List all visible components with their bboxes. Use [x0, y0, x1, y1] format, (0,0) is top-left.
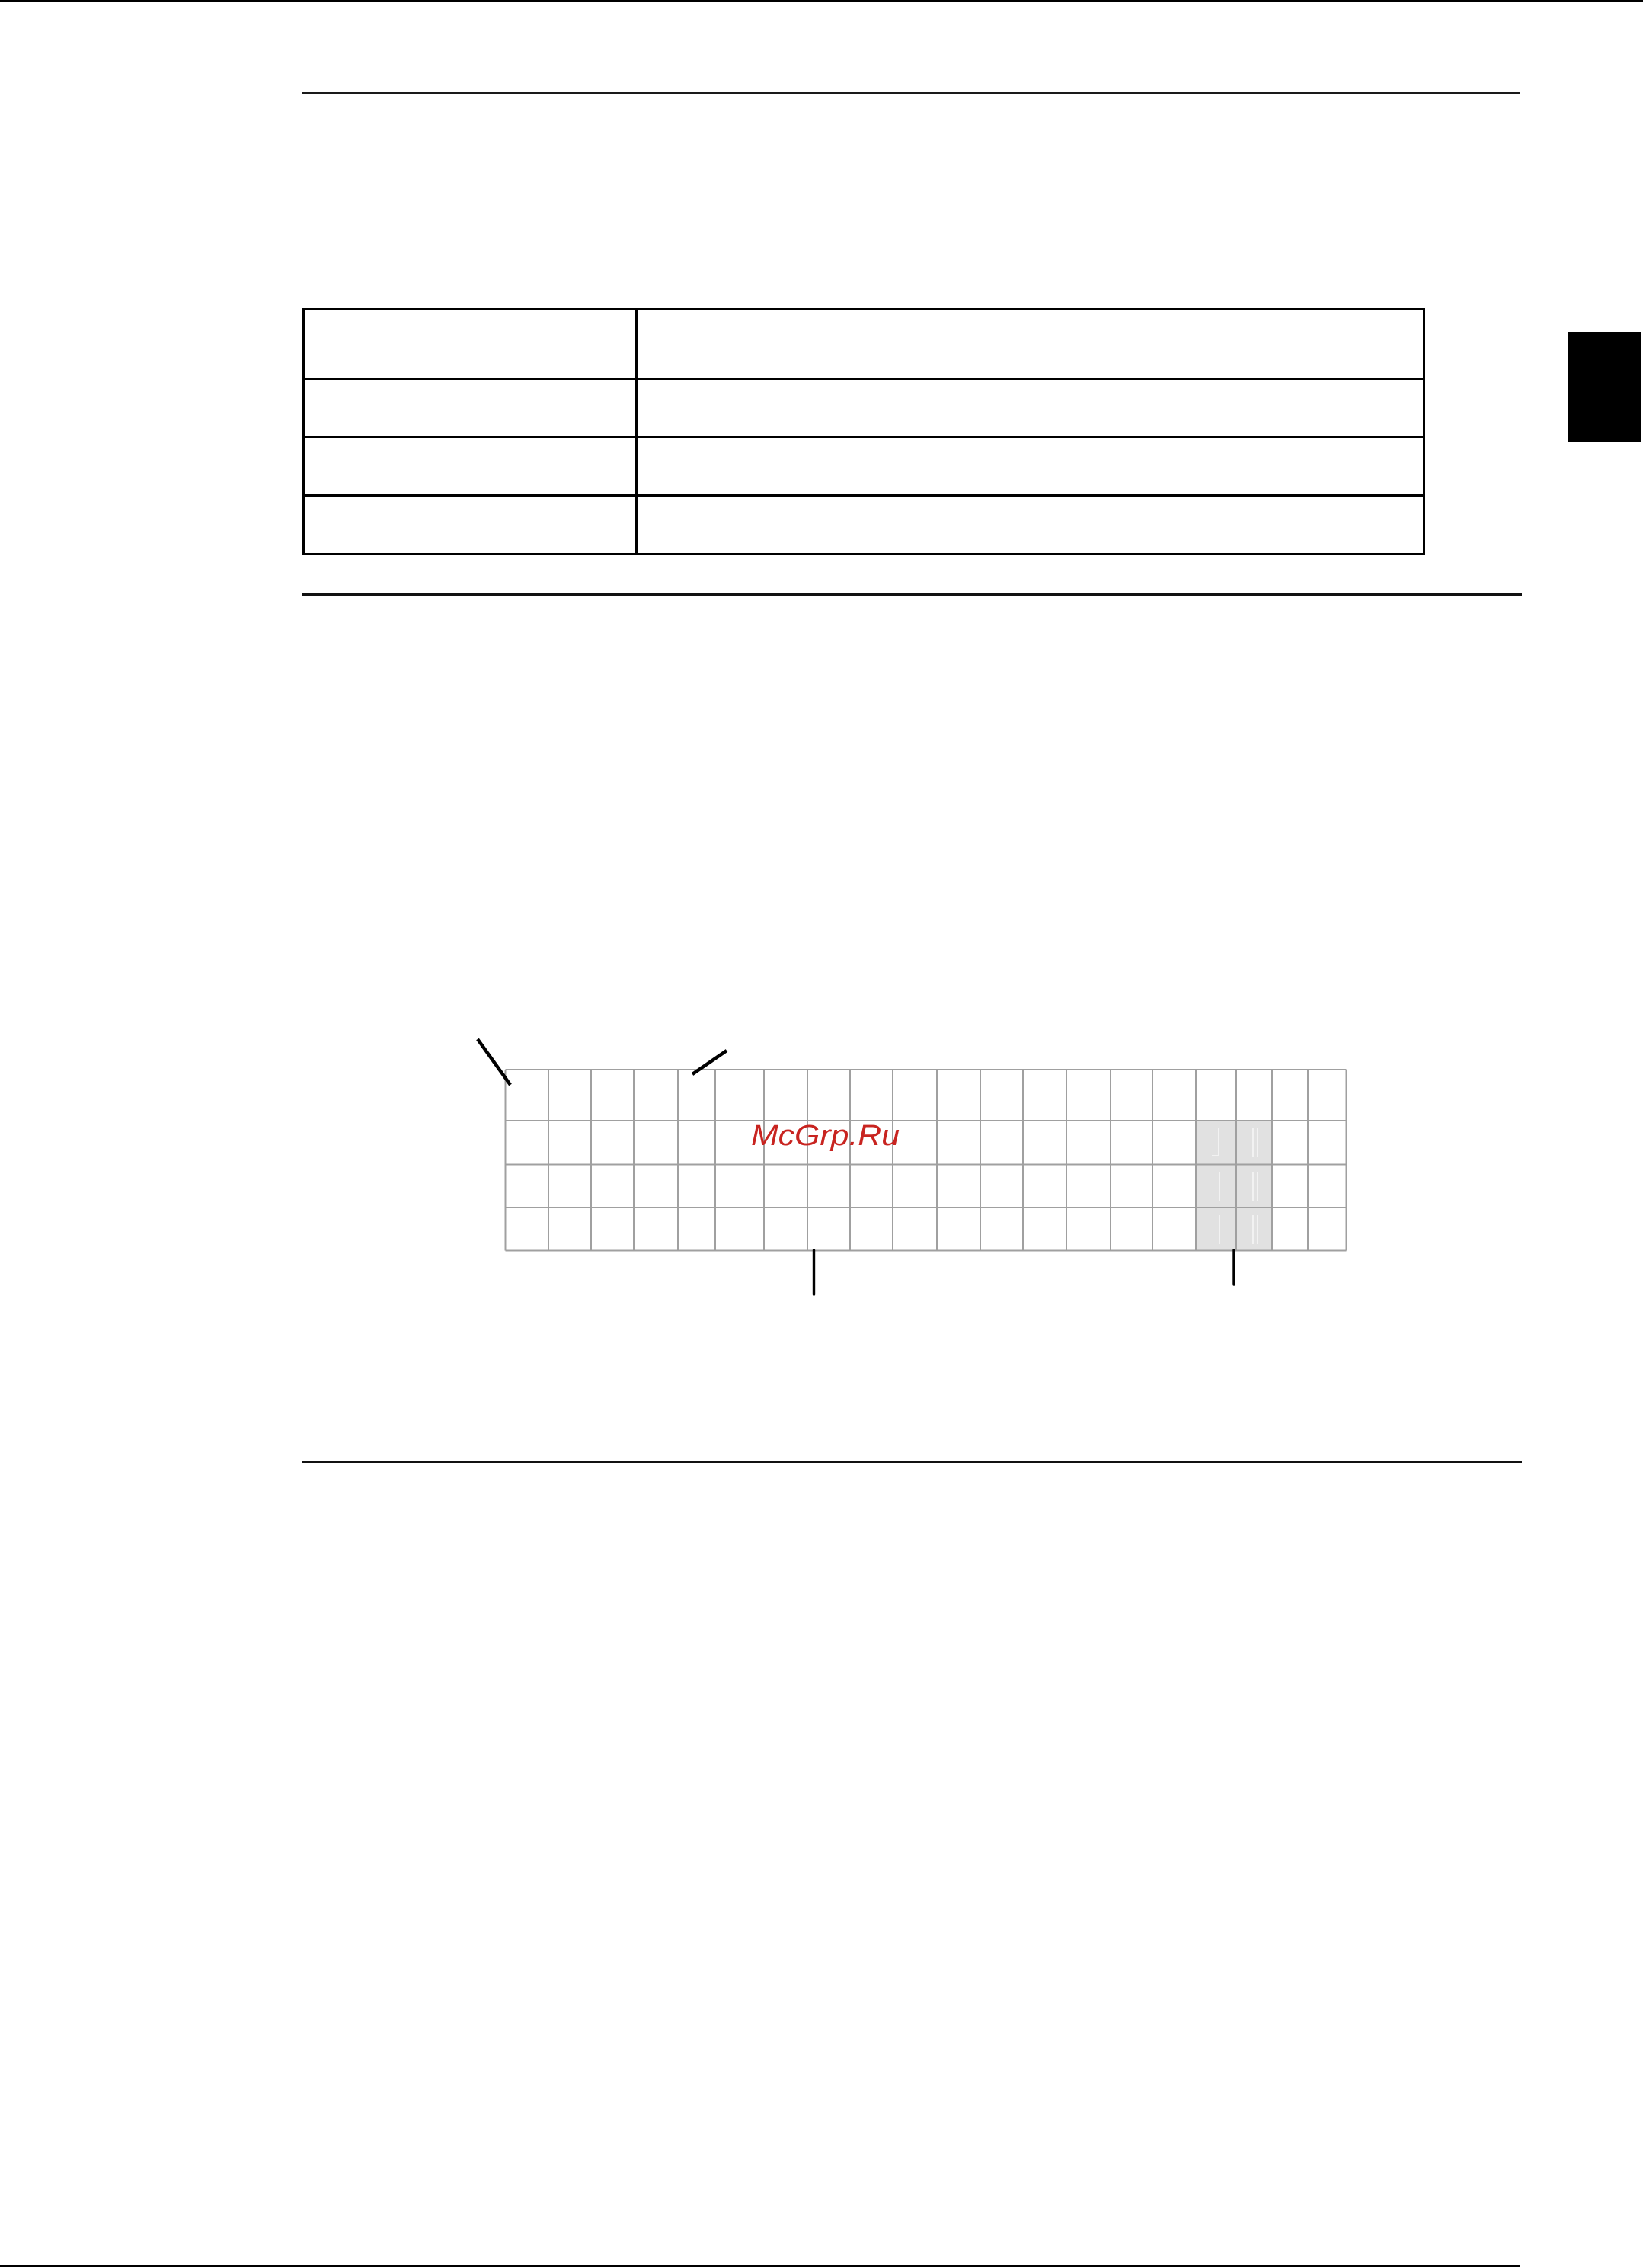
svg-text:McGrp.Ru: McGrp.Ru — [751, 1120, 900, 1152]
